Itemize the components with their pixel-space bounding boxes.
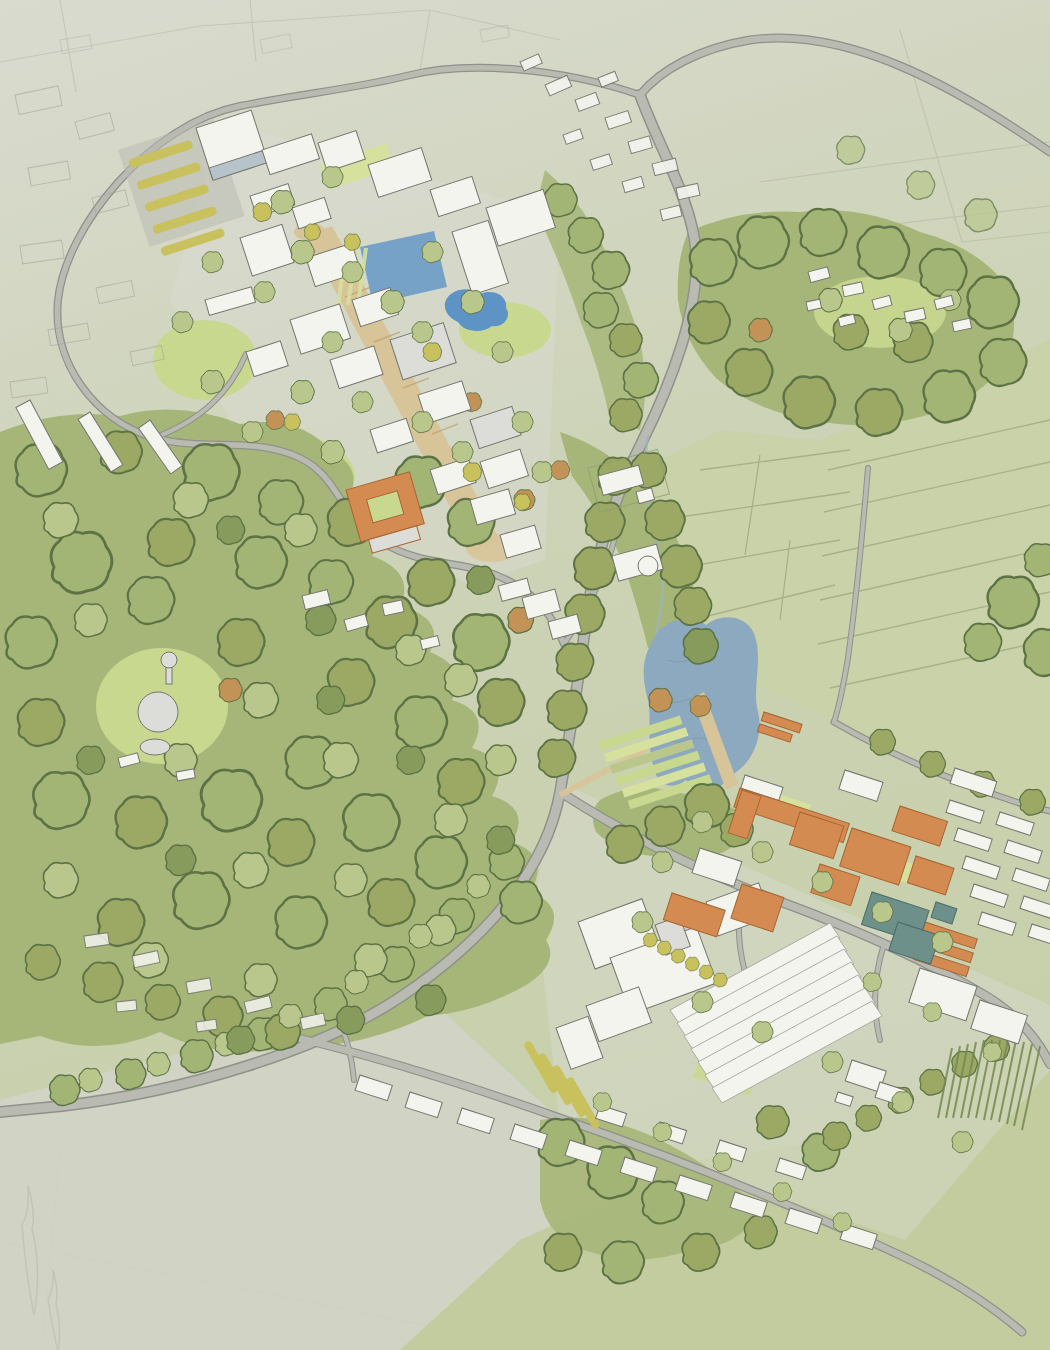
masterplan-svg (0, 0, 1050, 1350)
masterplan-illustration (0, 0, 1050, 1350)
